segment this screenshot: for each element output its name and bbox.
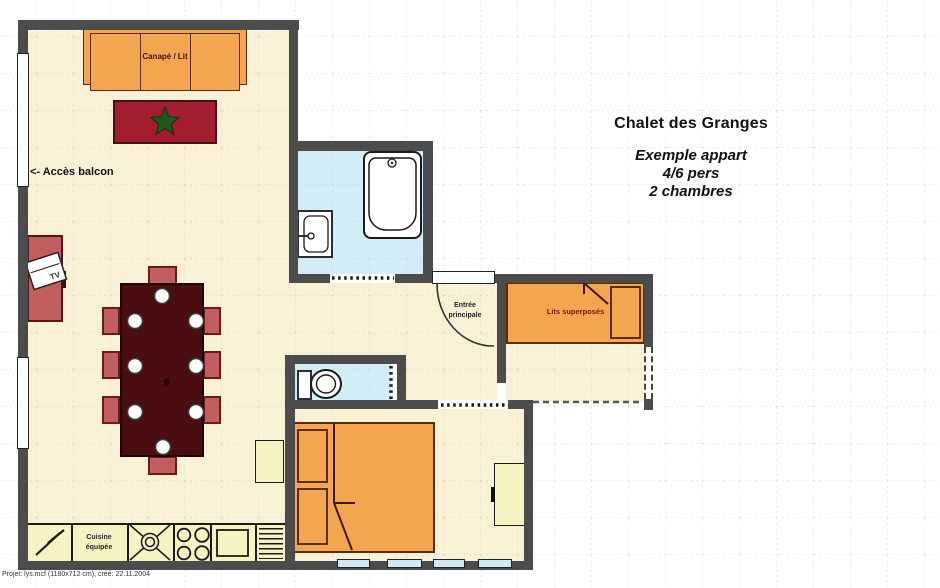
tv-stand bbox=[27, 235, 63, 322]
kitchen-divider bbox=[255, 523, 257, 563]
balcony-access-label: <- Accès balcon bbox=[30, 166, 114, 180]
wall-wc-right bbox=[397, 355, 406, 409]
sofa-label: Canapé / Lit bbox=[83, 52, 247, 62]
sofa-cushion bbox=[90, 33, 141, 91]
entrance-opening bbox=[432, 271, 495, 284]
window-bedroom bbox=[387, 559, 422, 568]
window-bedroom bbox=[478, 559, 512, 568]
wall-right-stub bbox=[644, 398, 653, 410]
window-balcony-door bbox=[17, 53, 29, 187]
project-info-footer: Projet: lys.mcf (1180x712 cm), créé: 22.… bbox=[2, 571, 150, 580]
window-bedroom bbox=[433, 559, 465, 568]
wall-right bbox=[644, 274, 653, 348]
chair bbox=[148, 456, 177, 475]
kitchen-label-line: équipée bbox=[71, 543, 127, 553]
wall-entrance-divider bbox=[497, 283, 506, 383]
window-hall-right bbox=[644, 347, 653, 399]
plan-subtitle: 2 chambres bbox=[580, 183, 802, 201]
wall-bathroom-top bbox=[289, 141, 433, 151]
kitchen-label-line: Cuisine bbox=[71, 533, 127, 543]
kitchen-radiator-icon bbox=[259, 528, 283, 559]
wall-bedroom-right bbox=[524, 400, 533, 570]
chair bbox=[203, 351, 221, 379]
pillow bbox=[297, 429, 328, 483]
kitchen-counter bbox=[26, 523, 288, 563]
plan-title: Chalet des Granges bbox=[580, 115, 802, 133]
entrance-label: Entrée principale bbox=[435, 301, 495, 321]
window-left bbox=[17, 357, 29, 449]
floor-hallway bbox=[289, 283, 433, 355]
bunk-beds-label: Lits superposés bbox=[506, 307, 645, 316]
dining-table bbox=[120, 283, 204, 457]
cabinet bbox=[255, 440, 284, 483]
wall-left-mid bbox=[285, 355, 295, 570]
floor-wc bbox=[295, 364, 391, 400]
chair bbox=[102, 307, 120, 335]
chair bbox=[203, 396, 221, 424]
sofa-cushion bbox=[190, 33, 240, 91]
wall-bedroom-top bbox=[285, 400, 438, 409]
rug bbox=[113, 100, 217, 144]
desk-handle bbox=[491, 487, 495, 502]
wall-bathroom-right bbox=[423, 141, 433, 283]
kitchen-label: Cuisine équipée bbox=[71, 533, 127, 553]
kitchen-divider bbox=[210, 523, 212, 563]
chair bbox=[102, 396, 120, 424]
kitchen-divider bbox=[173, 523, 175, 563]
floor-hallway bbox=[406, 355, 497, 400]
wall-living-right bbox=[289, 20, 298, 283]
plan-subtitle: Exemple appart bbox=[580, 147, 802, 165]
entrance-label-line: Entrée bbox=[435, 301, 495, 311]
wall-wc-top bbox=[285, 355, 406, 364]
sofa-cushion bbox=[140, 33, 191, 91]
floor-bathroom bbox=[298, 151, 423, 274]
wall-top bbox=[18, 20, 299, 30]
kitchen-divider bbox=[127, 523, 129, 563]
window-bedroom bbox=[337, 559, 370, 568]
tv-stand bbox=[61, 271, 66, 288]
pillow bbox=[297, 488, 328, 545]
plan-subtitle: 4/6 pers bbox=[580, 165, 802, 183]
title-block: Chalet des Granges Exemple appart 4/6 pe… bbox=[580, 115, 802, 201]
chair bbox=[102, 351, 120, 379]
wall-bathroom-bottom bbox=[289, 274, 330, 283]
entrance-label-line: principale bbox=[435, 311, 495, 321]
chair bbox=[203, 307, 221, 335]
desk bbox=[494, 463, 525, 526]
floor-plan-canvas: TV bbox=[0, 0, 940, 588]
